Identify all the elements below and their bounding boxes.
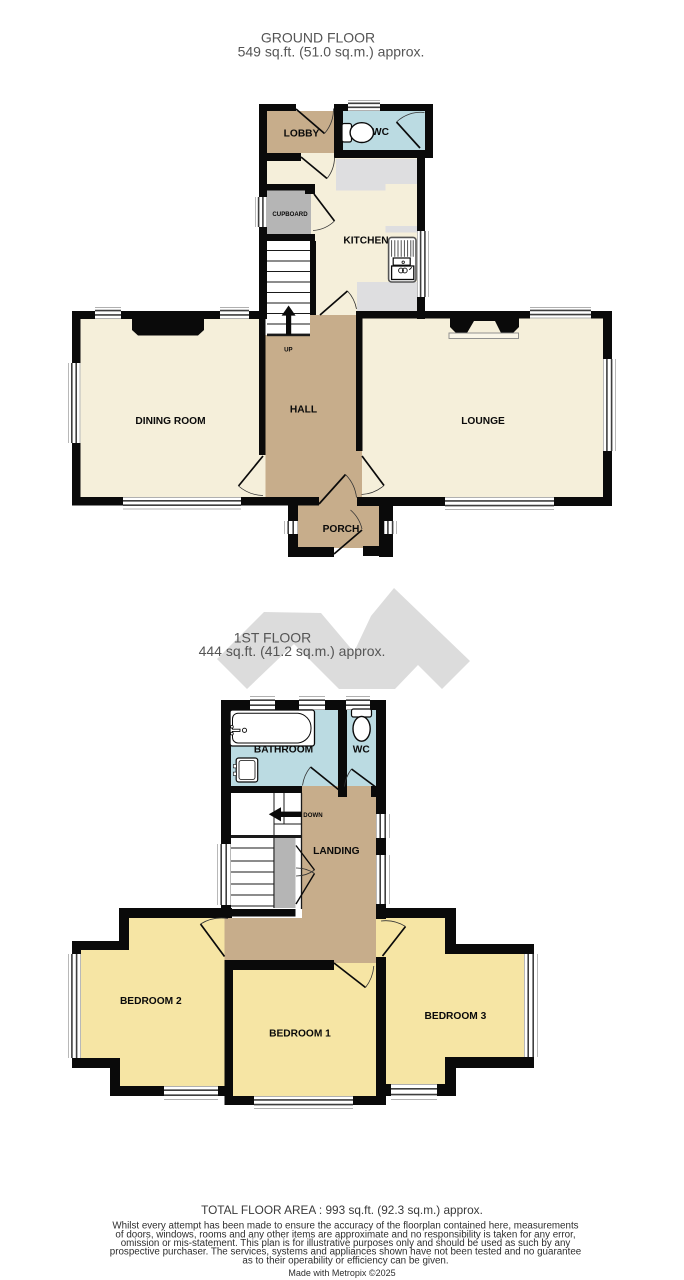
svg-text:BEDROOM 1: BEDROOM 1 [269, 1029, 331, 1040]
svg-text:HALL: HALL [290, 404, 317, 415]
svg-text:BEDROOM 3: BEDROOM 3 [425, 1011, 487, 1022]
svg-text:UP: UP [284, 347, 292, 354]
svg-text:as to their operability or eff: as to their operability or efficiency ca… [242, 1255, 448, 1266]
svg-text:444 sq.ft. (41.2 sq.m.) approx: 444 sq.ft. (41.2 sq.m.) approx. [199, 643, 386, 659]
svg-text:KITCHEN: KITCHEN [343, 236, 388, 247]
svg-text:WC: WC [372, 127, 390, 138]
svg-text:LANDING: LANDING [313, 846, 359, 857]
svg-text:549 sq.ft. (51.0 sq.m.) approx: 549 sq.ft. (51.0 sq.m.) approx. [238, 43, 425, 59]
svg-text:BEDROOM 2: BEDROOM 2 [120, 996, 182, 1007]
svg-text:WC: WC [353, 744, 371, 755]
svg-text:PORCH: PORCH [323, 524, 360, 535]
svg-text:LOUNGE: LOUNGE [461, 416, 505, 427]
svg-text:DOWN: DOWN [303, 812, 322, 819]
svg-text:BATHROOM: BATHROOM [254, 744, 313, 755]
svg-text:DINING ROOM: DINING ROOM [135, 416, 205, 427]
svg-text:CUPBOARD: CUPBOARD [272, 211, 308, 218]
svg-text:TOTAL FLOOR AREA : 993 sq.ft.: TOTAL FLOOR AREA : 993 sq.ft. (92.3 sq.m… [201, 1203, 483, 1217]
svg-text:LOBBY: LOBBY [284, 129, 320, 140]
svg-text:Made with Metropix ©2025: Made with Metropix ©2025 [288, 1268, 395, 1278]
